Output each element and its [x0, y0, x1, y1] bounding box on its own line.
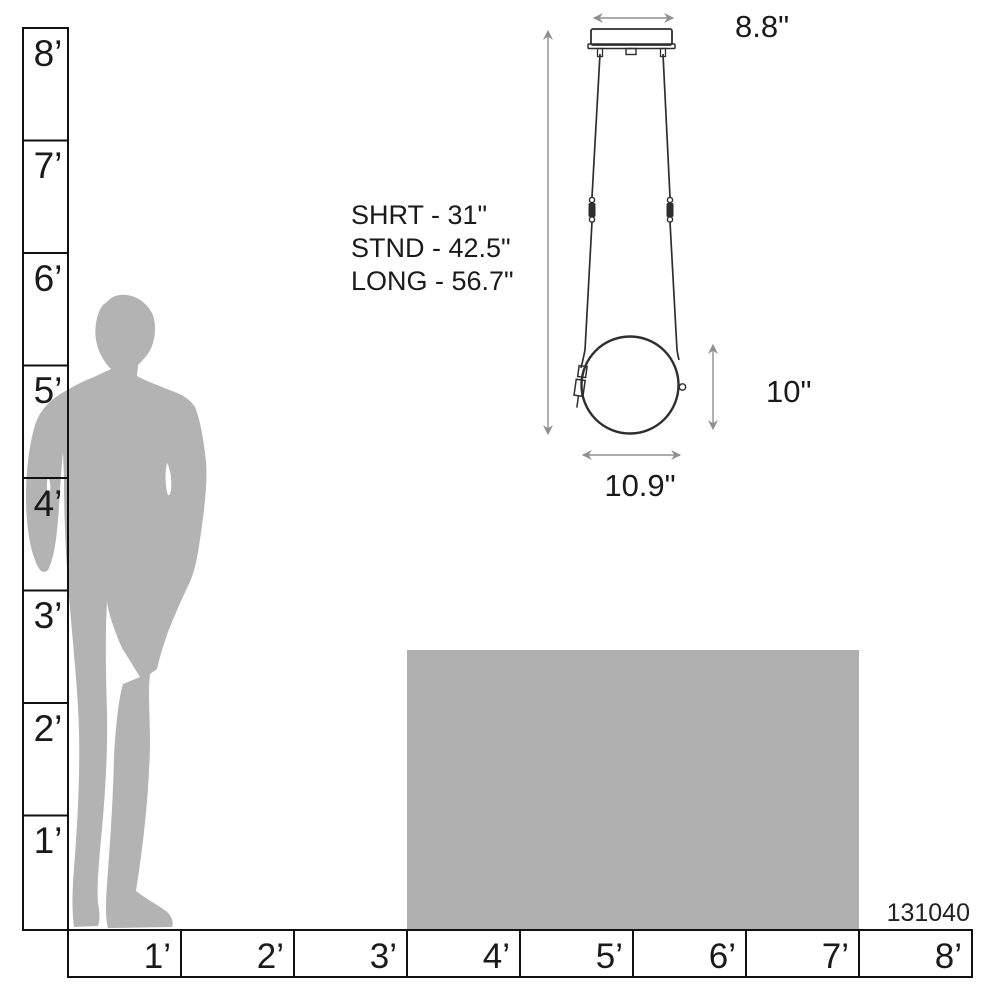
canopy-width-label: 8.8"	[735, 9, 789, 44]
vertical-ruler-label-8ft: 8’	[34, 33, 63, 74]
strap-knob	[679, 384, 685, 390]
vertical-ruler-label-6ft: 6’	[34, 258, 63, 299]
product-code: 131040	[887, 899, 970, 927]
horizontal-ruler-label-8ft: 8’	[935, 937, 962, 976]
vertical-ruler: 8’ 7’ 6’ 5’ 4’ 3’ 2’ 1’	[23, 28, 68, 930]
canopy-center-tab	[626, 49, 636, 55]
shade-height-label: 10"	[766, 374, 812, 409]
suspension-length-long: LONG - 56.7"	[351, 266, 514, 296]
scale-diagram-canvas: 8’ 7’ 6’ 5’ 4’ 3’ 2’ 1’ 1’ 2’ 3’ 4’ 5’ 6…	[0, 0, 1000, 1000]
suspension-length-short: SHRT - 31"	[351, 200, 487, 230]
horizontal-ruler-label-4ft: 4’	[483, 937, 510, 976]
suspension-length-standard: STND - 42.5"	[351, 233, 511, 263]
left-turnbuckle	[589, 197, 596, 222]
horizontal-ruler-label-5ft: 5’	[596, 937, 623, 976]
vertical-ruler-label-5ft: 5’	[34, 370, 63, 411]
scale-diagram: 8’ 7’ 6’ 5’ 4’ 3’ 2’ 1’ 1’ 2’ 3’ 4’ 5’ 6…	[0, 0, 1000, 1000]
horizontal-ruler-label-7ft: 7’	[822, 937, 849, 976]
horizontal-ruler-label-6ft: 6’	[709, 937, 736, 976]
horizontal-ruler-label-3ft: 3’	[370, 937, 397, 976]
dimension-lines	[548, 18, 713, 455]
vertical-ruler-label-1ft: 1’	[34, 820, 63, 861]
shade-circle	[582, 337, 679, 434]
vertical-ruler-label-2ft: 2’	[34, 708, 63, 749]
vertical-ruler-label-7ft: 7’	[34, 145, 63, 186]
shade-width-label: 10.9"	[604, 468, 675, 503]
vertical-ruler-label-3ft: 3’	[34, 595, 63, 636]
canopy	[591, 29, 672, 45]
suspension-length-options: SHRT - 31" STND - 42.5" LONG - 56.7"	[351, 200, 514, 296]
vertical-ruler-label-4ft: 4’	[34, 483, 63, 524]
right-turnbuckle	[667, 197, 674, 222]
pendant-fixture-drawing	[572, 29, 685, 434]
table-silhouette	[407, 650, 859, 930]
horizontal-ruler-label-2ft: 2’	[257, 937, 284, 976]
horizontal-ruler: 1’ 2’ 3’ 4’ 5’ 6’ 7’ 8’	[68, 930, 972, 977]
horizontal-ruler-label-1ft: 1’	[144, 937, 171, 976]
